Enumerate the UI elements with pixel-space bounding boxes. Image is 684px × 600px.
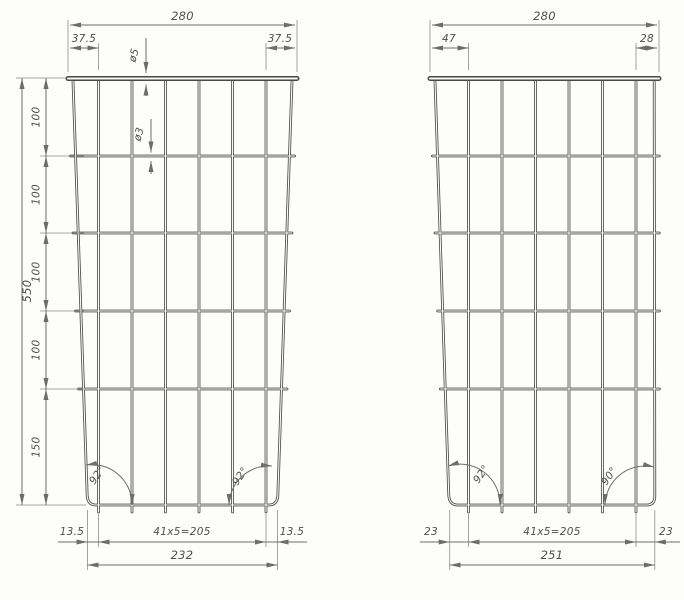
left-segment-4-label: 100 xyxy=(31,340,43,361)
left-top-right-offset-label: 37.5 xyxy=(268,33,293,45)
right-bottom-width-label: 251 xyxy=(541,548,564,562)
right-top-left-offset-label: 47 xyxy=(442,33,456,45)
left-bottom-left-offset-label: 13.5 xyxy=(60,526,85,538)
left-bottom-left-angle-label: 92° xyxy=(87,464,108,487)
left-wire-diameter-label: ø3 xyxy=(131,126,146,143)
left-panel-mesh xyxy=(68,79,297,513)
wire-panel-technical-drawing: 280 37.5 37.5 ø5 ø3 100 100 100 100 150 … xyxy=(0,0,684,600)
left-bottom-width-label: 232 xyxy=(171,548,194,562)
left-panel-extension-lines xyxy=(16,20,297,570)
right-bottom-pitch-label: 41x5=205 xyxy=(523,526,581,538)
left-top-left-offset-label: 37.5 xyxy=(72,33,97,45)
right-panel-dimension-lines xyxy=(420,25,680,565)
left-bar-diameter-label: ø5 xyxy=(126,47,141,64)
right-panel-mesh xyxy=(430,79,659,513)
left-segment-2-label: 100 xyxy=(31,184,43,205)
left-segment-5-label: 150 xyxy=(31,437,43,458)
left-bottom-right-offset-label: 13.5 xyxy=(280,526,305,538)
left-segment-1-label: 100 xyxy=(31,107,43,128)
left-total-height-label: 550 xyxy=(20,280,34,303)
right-bottom-left-offset-label: 23 xyxy=(424,526,438,538)
right-panel-extension-lines xyxy=(430,20,659,570)
right-top-right-offset-label: 28 xyxy=(640,33,654,45)
right-top-width-label: 280 xyxy=(533,9,556,23)
right-bottom-right-offset-label: 23 xyxy=(659,526,673,538)
right-panel-figure: 280 47 28 23 41x5=205 23 251 92° 90° xyxy=(420,9,680,570)
left-panel-labels: 280 37.5 37.5 ø5 ø3 100 100 100 100 150 … xyxy=(20,9,304,562)
left-panel-figure: 280 37.5 37.5 ø5 ø3 100 100 100 100 150 … xyxy=(16,9,307,570)
drawing-sheet: 280 37.5 37.5 ø5 ø3 100 100 100 100 150 … xyxy=(0,0,684,600)
left-bottom-pitch-label: 41x5=205 xyxy=(153,526,211,538)
left-top-width-label: 280 xyxy=(171,9,194,23)
left-segment-3-label: 100 xyxy=(31,262,43,283)
